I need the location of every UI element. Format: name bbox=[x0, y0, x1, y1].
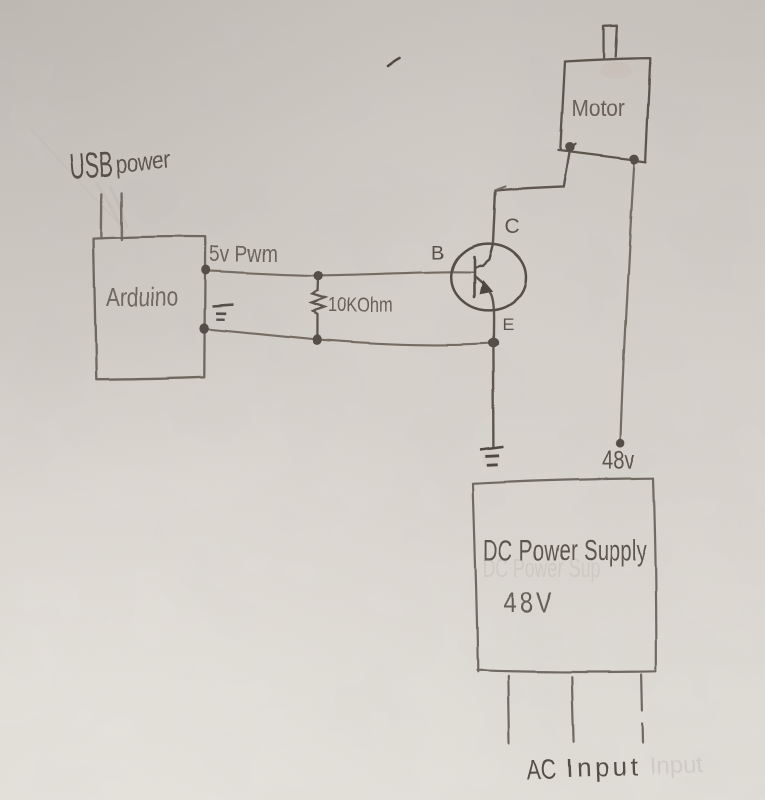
svg-text:C: C bbox=[505, 215, 520, 238]
svg-text:USB: USB bbox=[68, 144, 114, 188]
svg-text:AC: AC bbox=[526, 755, 556, 787]
svg-text:5v Pwm: 5v Pwm bbox=[209, 242, 277, 267]
svg-text:Motor: Motor bbox=[572, 95, 626, 122]
svg-text:48V: 48V bbox=[504, 586, 556, 619]
svg-text:power: power bbox=[115, 145, 172, 178]
svg-text:Input: Input bbox=[649, 751, 704, 780]
svg-text:Input: Input bbox=[565, 751, 642, 784]
svg-text:DC Power Sup: DC Power Sup bbox=[483, 554, 600, 583]
svg-text:Arduino: Arduino bbox=[106, 283, 178, 312]
svg-text:B: B bbox=[432, 242, 445, 264]
svg-text:48v: 48v bbox=[602, 445, 635, 474]
svg-text:10KOhm: 10KOhm bbox=[328, 293, 393, 316]
svg-text:E: E bbox=[502, 315, 513, 334]
